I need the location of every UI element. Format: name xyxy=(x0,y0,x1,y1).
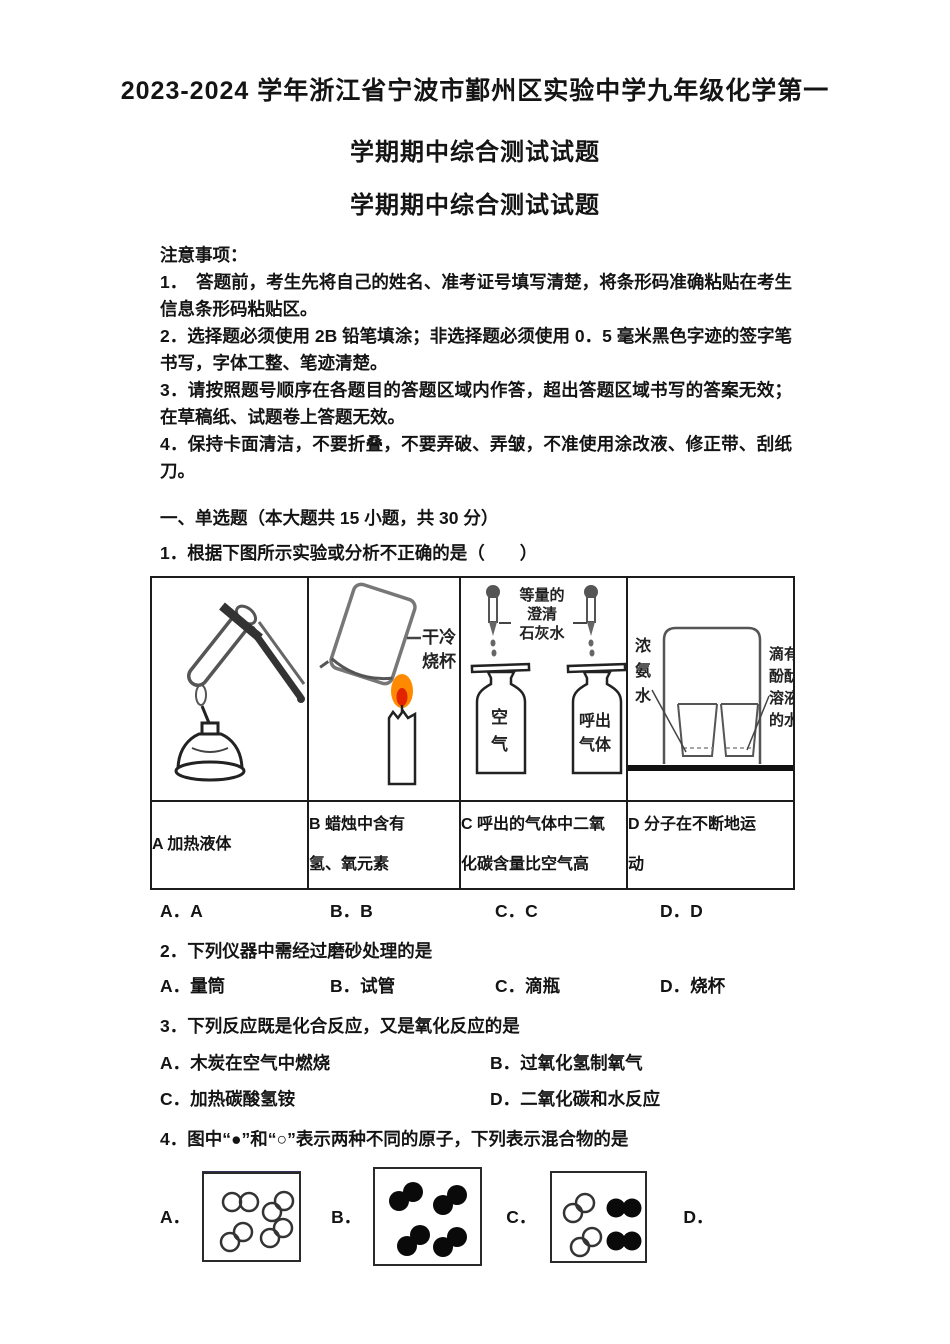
air-bottle-label: 空 气 xyxy=(491,704,508,758)
q1-option-c: C．C xyxy=(495,897,660,925)
phenolphthalein-label: 滴有 酚酞 溶液 的水 xyxy=(769,644,794,732)
question-1-text: 1．根据下图所示实验或分析不正确的是（ ） xyxy=(160,540,950,567)
q2-option-b: B．试管 xyxy=(330,972,495,1000)
question-1-options: A．A B．B C．C D．D xyxy=(160,897,950,925)
notes-block: 注意事项： 1． 答题前，考生先将自己的姓名、准考证号填写清楚，将条形码准确粘贴… xyxy=(160,242,792,485)
candle-beaker-icon xyxy=(309,578,459,800)
q4-option-b-label: B． xyxy=(331,1204,361,1229)
q3-option-d: D．二氧化碳和水反应 xyxy=(490,1085,820,1113)
question-4-diagrams: A． B． C． D． xyxy=(160,1167,950,1266)
ammonia-label: 浓 氨 水 xyxy=(635,634,651,709)
q2-option-a: A．量筒 xyxy=(160,972,330,1000)
caption-row: A 加热液体 B 蜡烛中含有 氢、氧元素 C 呼出的气体中二氧 化碳含量比空气高… xyxy=(151,801,794,889)
q1-option-d: D．D xyxy=(660,897,820,925)
question-3-options: A．木炭在空气中燃烧 B．过氧化氢制氧气 C．加热碳酸氢铵 D．二氧化碳和水反应 xyxy=(160,1049,950,1113)
exam-title-line3: 学期期中综合测试试题 xyxy=(60,185,890,220)
q1-option-a: A．A xyxy=(160,897,330,925)
figure-cell-candle-beaker: 干冷 烧杯 xyxy=(308,577,460,801)
section-heading: 一、单选题（本大题共 15 小题，共 30 分） xyxy=(160,505,950,532)
caption-b: B 蜡烛中含有 氢、氧元素 xyxy=(308,801,460,889)
q4-option-c-label: C． xyxy=(506,1204,536,1229)
q4-option-a-label: A． xyxy=(160,1204,190,1229)
q2-option-d: D．烧杯 xyxy=(660,972,820,1000)
q2-option-c: C．滴瓶 xyxy=(495,972,660,1000)
molecule-box-b-icon xyxy=(373,1167,482,1266)
note-item-4: 4．保持卡面清洁，不要折叠，不要弄破、弄皱，不准使用涂改液、修正带、刮纸刀。 xyxy=(160,431,792,485)
figure-cell-heating-liquid xyxy=(151,577,308,801)
figure-cell-limewater: 等量的 澄清 石灰水 空 气 呼出 气体 xyxy=(460,577,627,801)
exhaled-gas-bottle-label: 呼出 气体 xyxy=(579,710,611,758)
limewater-label: 等量的 澄清 石灰水 xyxy=(511,586,573,643)
molecule-box-c-icon xyxy=(550,1171,647,1263)
exam-title-line1: 2023-2024 学年浙江省宁波市鄞州区实验中学九年级化学第一 xyxy=(60,74,890,108)
question-2-text: 2．下列仪器中需经过磨砂处理的是 xyxy=(160,938,950,965)
figure-row: 干冷 烧杯 xyxy=(151,577,794,801)
question-4-text: 4．图中“●”和“○”表示两种不同的原子，下列表示混合物的是 xyxy=(160,1126,950,1153)
q1-option-b: B．B xyxy=(330,897,495,925)
q3-option-c: C．加热碳酸氢铵 xyxy=(160,1085,490,1113)
flame-inner xyxy=(397,688,408,706)
heating-liquid-icon xyxy=(152,578,307,800)
experiment-table: 干冷 烧杯 xyxy=(150,576,795,890)
exam-page: 2023-2024 学年浙江省宁波市鄞州区实验中学九年级化学第一 学期期中综合测… xyxy=(0,0,950,1344)
caption-d: D 分子在不断地运 动 xyxy=(627,801,794,889)
caption-c: C 呼出的气体中二氧 化碳含量比空气高 xyxy=(460,801,627,889)
note-item-1: 1． 答题前，考生先将自己的姓名、准考证号填写清楚，将条形码准确粘贴在考生信息条… xyxy=(160,269,792,323)
note-item-3: 3．请按照题号顺序在各题目的答题区域内作答，超出答题区域书写的答案无效；在草稿纸… xyxy=(160,377,792,431)
caption-a: A 加热液体 xyxy=(151,801,308,889)
question-2-options: A．量筒 B．试管 C．滴瓶 D．烧杯 xyxy=(160,972,950,1000)
exam-title-line2: 学期期中综合测试试题 xyxy=(60,132,890,167)
molecule-box-a-icon xyxy=(202,1172,301,1262)
q4-option-d-label: D． xyxy=(683,1204,713,1229)
q3-option-b: B．过氧化氢制氧气 xyxy=(490,1049,820,1077)
dry-cold-beaker-label: 干冷 烧杯 xyxy=(422,626,456,674)
figure-cell-ammonia: 浓 氨 水 滴有 酚酞 溶液 的水 xyxy=(627,577,794,801)
notes-heading: 注意事项： xyxy=(160,242,792,269)
note-item-2: 2．选择题必须使用 2B 铅笔填涂；非选择题必须使用 0．5 毫米黑色字迹的签字… xyxy=(160,323,792,377)
question-3-text: 3．下列反应既是化合反应，又是氧化反应的是 xyxy=(160,1013,950,1040)
q3-option-a: A．木炭在空气中燃烧 xyxy=(160,1049,490,1077)
